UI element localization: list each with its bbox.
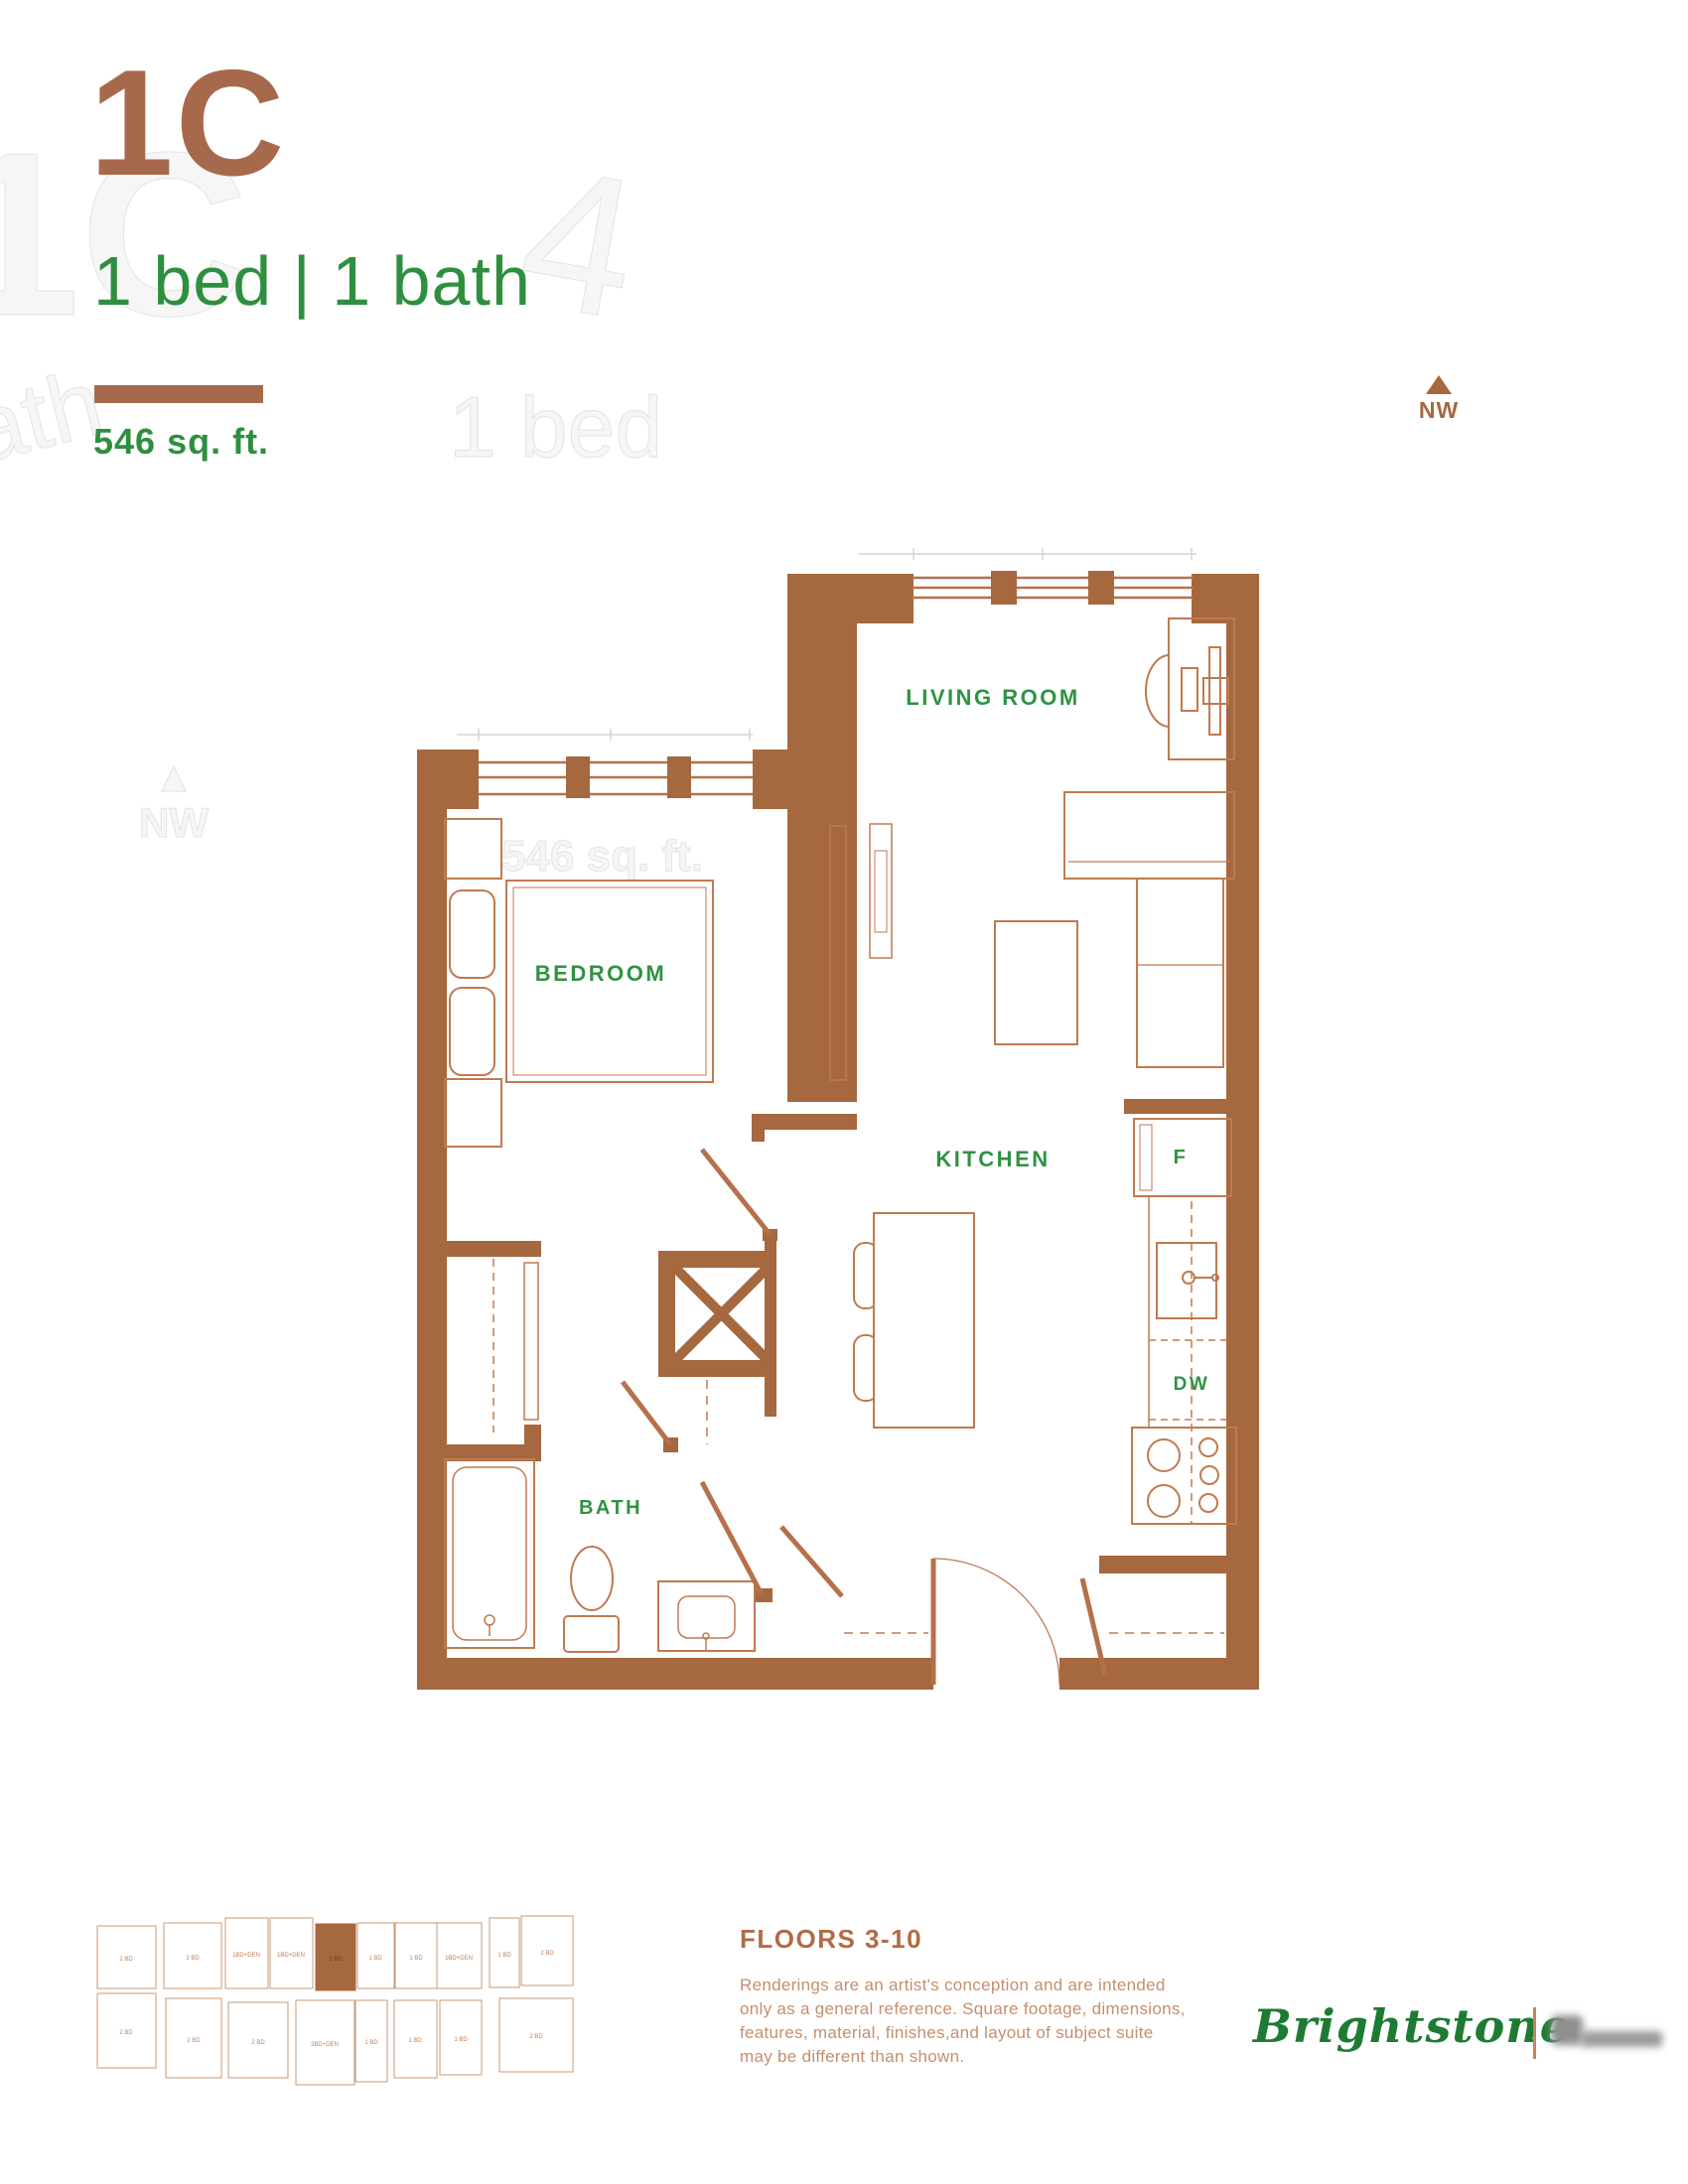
compass: NW — [1408, 375, 1470, 424]
svg-text:1 BD: 1 BD — [454, 2037, 468, 2043]
watermark-compass: ▲ NW — [139, 754, 209, 846]
unit-area: 546 sq. ft. — [93, 421, 269, 463]
keyplan-unit: 1 BD — [395, 1923, 437, 1988]
brand-divider — [1533, 2007, 1536, 2059]
bathtub — [445, 1459, 534, 1648]
sofa — [1064, 792, 1234, 1067]
media-console — [870, 824, 892, 958]
door-leaves — [623, 1150, 1105, 1685]
kitchen-sink — [1157, 1243, 1218, 1318]
kitchen-island — [854, 1213, 974, 1428]
disclaimer: Renderings are an artist's conception an… — [740, 1974, 1186, 2070]
keyplan-unit: 1BD+DEN — [270, 1918, 313, 1988]
keyplan-unit: 2 BD — [521, 1916, 573, 1985]
keyplan-unit: 1 BD — [357, 1923, 394, 1988]
keyplan-unit: 2 BD — [499, 1998, 573, 2072]
fridge-label: F — [1174, 1147, 1189, 1168]
svg-text:2 BD: 2 BD — [540, 1951, 554, 1957]
brand-logo: Brightstone — [1253, 1999, 1570, 2053]
watermark-compass-arrow: ▲ — [139, 754, 209, 800]
svg-text:1 BD: 1 BD — [368, 1956, 382, 1962]
vanity-sink — [658, 1581, 755, 1651]
entry-door-swing — [933, 1559, 1059, 1685]
keyplan-unit: 1 BD — [490, 1918, 519, 1987]
kitchen-label: KITCHEN — [935, 1147, 1050, 1171]
keyplan-unit: 1 BD — [355, 2000, 387, 2082]
partner-logo-blurred — [1551, 2015, 1583, 2045]
disclaimer-line: may be different than shown. — [740, 2045, 1186, 2069]
nightstands — [445, 819, 501, 1147]
svg-text:2 BD: 2 BD — [187, 2038, 201, 2044]
disclaimer-line: features, material, finishes,and layout … — [740, 2021, 1186, 2045]
disclaimer-line: only as a general reference. Square foot… — [740, 1997, 1186, 2021]
bath-label: BATH — [579, 1497, 642, 1519]
svg-text:1 BD: 1 BD — [409, 1956, 423, 1962]
accent-rule — [94, 385, 263, 403]
disclaimer-line: Renderings are an artist's conception an… — [740, 1974, 1186, 1997]
svg-text:2 BD: 2 BD — [529, 2034, 543, 2040]
watermark-bed: 1 bed — [449, 379, 662, 478]
svg-text:2 BD: 2 BD — [119, 1957, 133, 1963]
svg-text:2 BD: 2 BD — [251, 2040, 265, 2046]
toilet — [564, 1547, 619, 1652]
keyplan-unit: 2 BD — [166, 1998, 221, 2078]
svg-text:1 BD: 1 BD — [364, 2040, 378, 2046]
svg-text:1BD+DEN: 1BD+DEN — [277, 1953, 305, 1959]
keyplan-unit: 2 BD — [228, 2002, 288, 2078]
watermark-compass-label: NW — [139, 800, 209, 846]
living-room-window — [912, 571, 1194, 605]
svg-text:1 BD: 1 BD — [497, 1953, 511, 1959]
desk — [1146, 618, 1234, 759]
keyplan-unit: 2 BD — [97, 1926, 156, 1988]
dishwasher-label: DW — [1174, 1374, 1210, 1395]
building-key-plan: 2 BD 2 BD 1BD+DEN 1BD+DEN 1 BD 1 BD 1 BD… — [84, 1876, 640, 2124]
keyplan-unit: 2 BD — [97, 1993, 156, 2068]
floors-caption: FLOORS 3-10 — [740, 1924, 922, 1955]
partner-logo-blurred-bar — [1581, 2031, 1662, 2047]
page-title-unit-code: 1C — [89, 48, 286, 199]
coffee-table — [995, 921, 1077, 1044]
bedroom-window — [479, 756, 753, 798]
living-room-label: LIVING ROOM — [906, 685, 1079, 710]
keyplan-unit: 2BD+DEN — [296, 2000, 354, 2085]
keyplan-unit: 2 BD — [164, 1923, 221, 1988]
unit-spec: 1 bed | 1 bath — [93, 246, 531, 316]
svg-text:2 BD: 2 BD — [186, 1956, 200, 1962]
stove — [1132, 1428, 1236, 1524]
shaft-x-brace — [675, 1268, 768, 1360]
kitchen-counter — [1149, 1196, 1226, 1524]
compass-arrow-icon — [1426, 375, 1452, 394]
svg-text:2 BD: 2 BD — [119, 2030, 133, 2036]
svg-text:1BD+DEN: 1BD+DEN — [445, 1956, 473, 1962]
svg-text:2BD+DEN: 2BD+DEN — [311, 2042, 339, 2048]
svg-text:1 BD: 1 BD — [408, 2038, 422, 2044]
floor-plan: LIVING ROOM BEDROOM KITCHEN BATH F DW — [397, 546, 1271, 1717]
bedroom-label: BEDROOM — [535, 961, 666, 986]
keyplan-unit: 1BD+DEN — [225, 1918, 268, 1988]
svg-text:1BD+DEN: 1BD+DEN — [232, 1953, 260, 1959]
keyplan-unit: 1BD+DEN — [437, 1923, 482, 1988]
keyplan-unit: 1 BD — [440, 2000, 482, 2075]
compass-direction: NW — [1408, 397, 1470, 424]
keyplan-unit: 1 BD — [394, 2000, 437, 2078]
linen-closet — [493, 1259, 538, 1433]
svg-text:1 BD: 1 BD — [329, 1957, 343, 1963]
keyplan-unit-highlight: 1 BD — [316, 1924, 355, 1990]
